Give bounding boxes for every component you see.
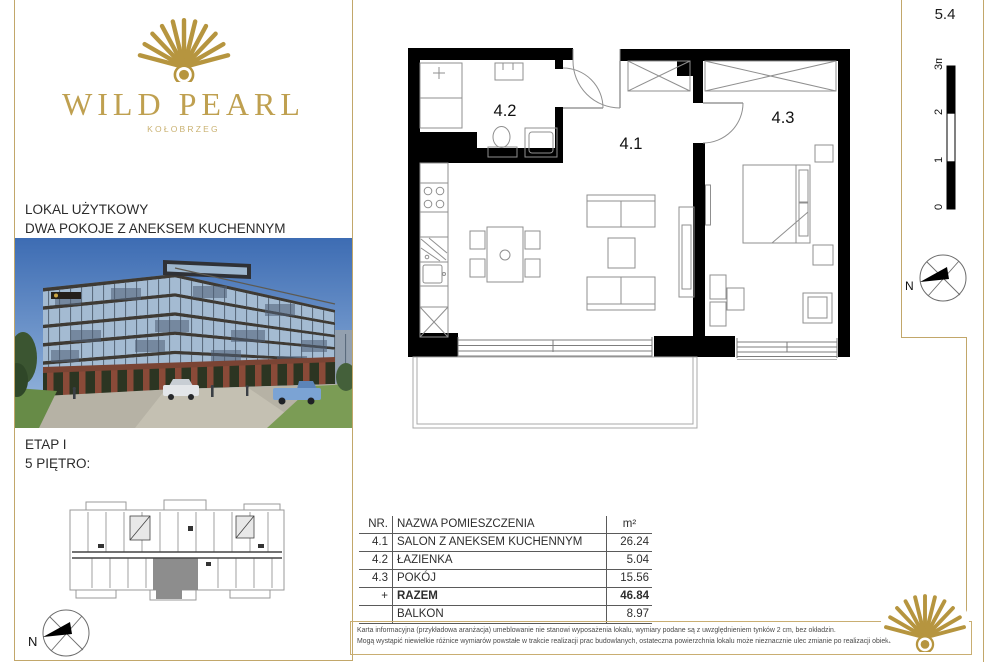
scale-bar: 0 1 2 3m [918, 58, 966, 218]
compass-rose: N [26, 604, 106, 664]
footer-shell-icon [878, 586, 972, 652]
room-label-4-2: 4.2 [494, 102, 517, 120]
area-table: NR. NAZWA POMIESZCZENIA m² 4.1 SALON Z A… [359, 516, 652, 624]
north-label: N [28, 634, 37, 649]
scale-0: 0 [933, 204, 945, 210]
room-label-4-3: 4.3 [772, 109, 795, 127]
compass-rose: N [902, 250, 974, 308]
etap-label: ETAP I [25, 435, 90, 454]
brand-city: KOŁOBRZEG [15, 124, 352, 134]
unit-number: 5.4 [920, 6, 970, 23]
living-room-furniture [587, 195, 694, 310]
floor-label: 5 PIĘTRO: [25, 454, 90, 473]
header-nr: NR. [359, 516, 393, 533]
room-label-4-1: 4.1 [620, 135, 643, 153]
bedroom-furniture [706, 145, 834, 326]
building-photo [15, 238, 352, 428]
apartment-floor-plan: 4.1 4.2 4.3 [400, 38, 890, 470]
right-frame-line [901, 337, 967, 338]
header-area: m² [607, 516, 652, 533]
table-row-total: + RAZEM 46.84 [359, 588, 652, 606]
listing-heading: LOKAL UŻYTKOWY DWA POKOJE Z ANEKSEM KUCH… [25, 200, 286, 238]
table-header-row: NR. NAZWA POMIESZCZENIA m² [359, 516, 652, 534]
kitchen [420, 163, 448, 337]
table-row: 4.3 POKÓJ 15.56 [359, 570, 652, 588]
scale-3m: 3m [933, 58, 945, 70]
wardrobes [628, 61, 836, 91]
highlighted-balcony [156, 590, 182, 599]
highlighted-unit [153, 558, 198, 590]
header-name: NAZWA POMIESZCZENIA [393, 516, 607, 533]
table-row: 4.1 SALON Z ANEKSEM KUCHENNYM 26.24 [359, 534, 652, 552]
balcony [413, 357, 697, 428]
stage-floor: ETAP I 5 PIĘTRO: [25, 435, 90, 473]
floor-plan-card: WILD PEARL KOŁOBRZEG LOKAL UŻYTKOWY DWA … [0, 0, 1000, 667]
right-frame-line [966, 337, 967, 622]
brand-name: WILD PEARL [15, 86, 352, 123]
dining-set [470, 227, 540, 282]
scale-1: 1 [933, 157, 945, 163]
heading-line2: DWA POKOJE Z ANEKSEM KUCHENNYM [25, 219, 286, 238]
north-label: N [905, 279, 914, 293]
right-frame-line [983, 0, 984, 662]
windows [458, 337, 837, 360]
storey-overview-plan [58, 486, 290, 608]
scale-2: 2 [933, 109, 945, 115]
heading-line1: LOKAL UŻYTKOWY [25, 200, 286, 219]
walls [408, 48, 850, 357]
table-row: 4.2 ŁAZIENKA 5.04 [359, 552, 652, 570]
brand-shell-logo [120, 14, 248, 82]
